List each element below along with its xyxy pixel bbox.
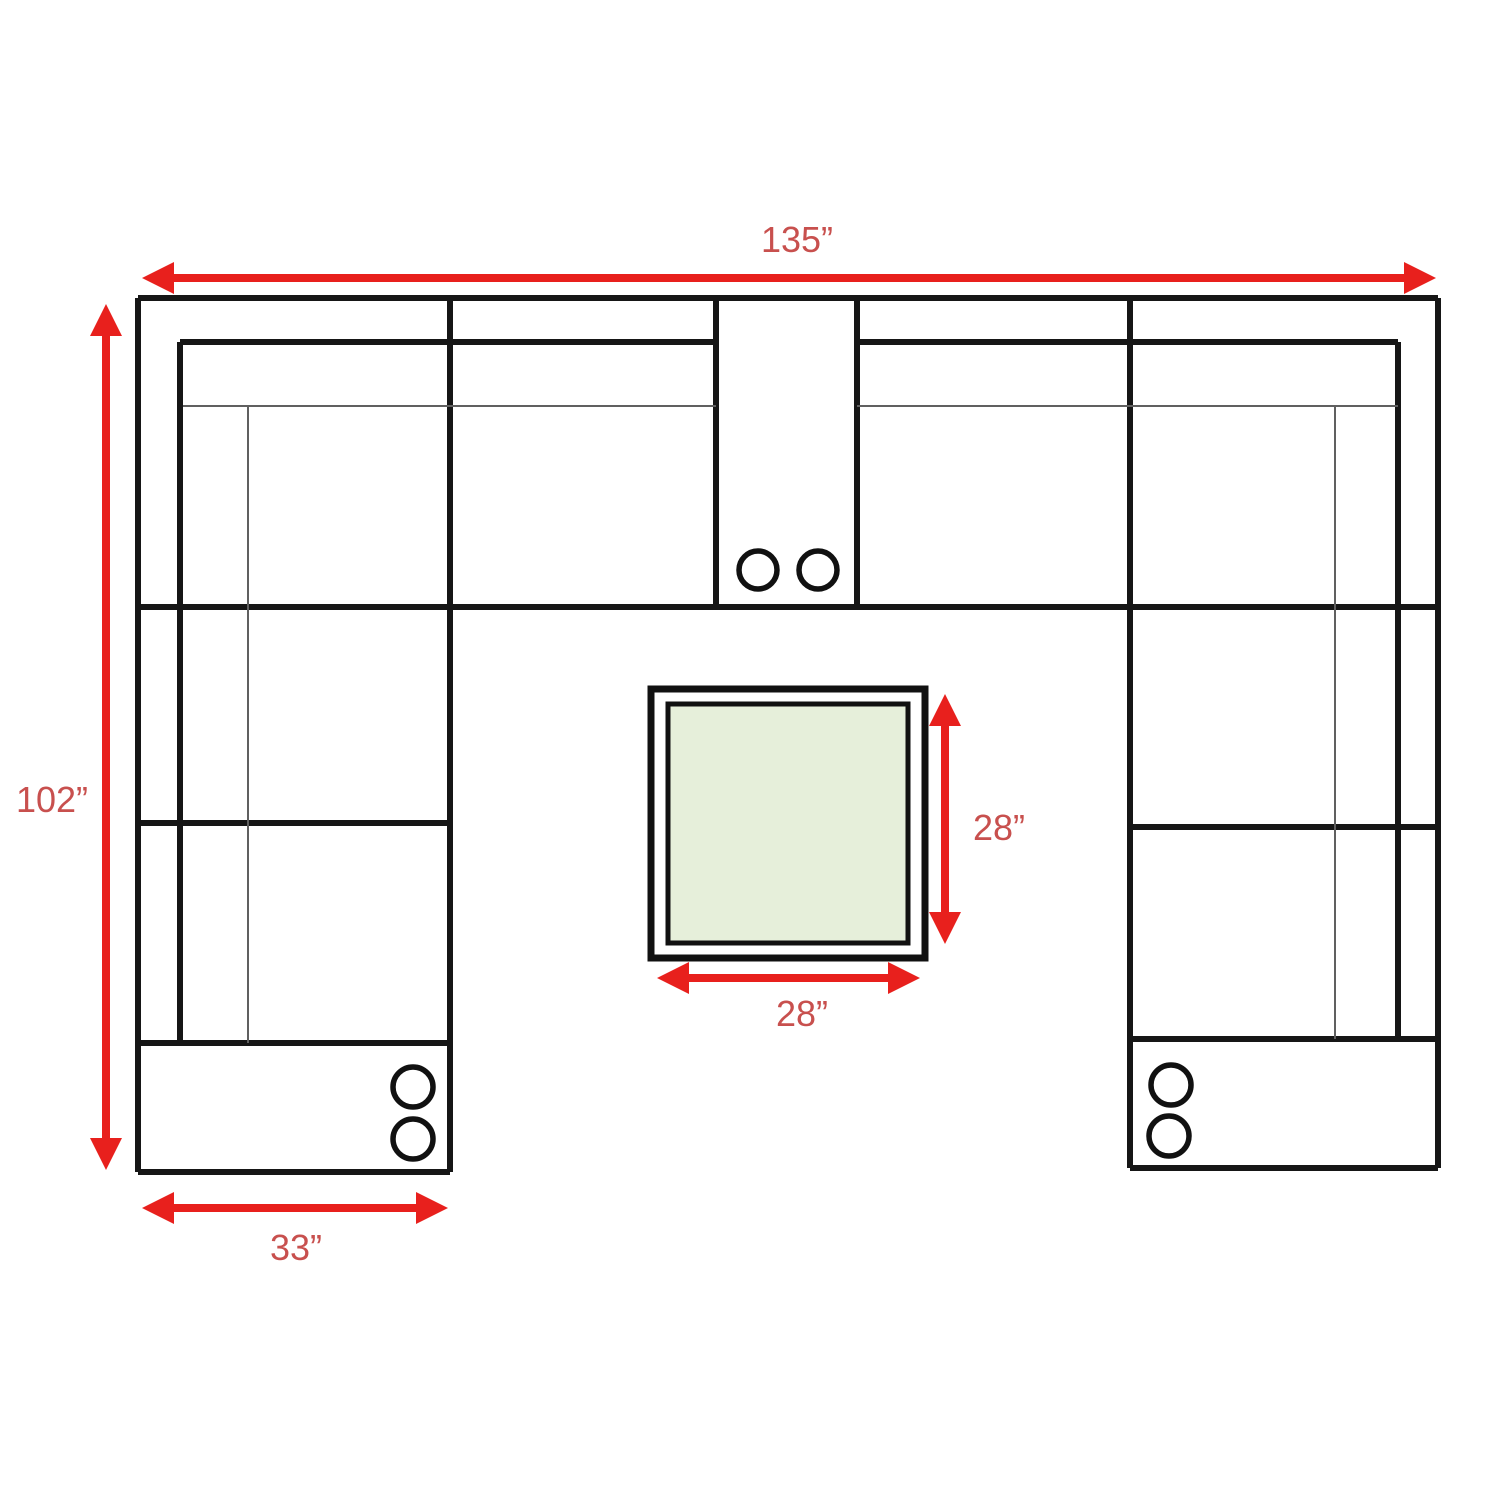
floorplan-canvas: 135” 102” 33” 28” 28” <box>0 0 1500 1500</box>
cupholder-icon <box>393 1119 433 1159</box>
cocktail-table <box>651 689 925 958</box>
table-depth-label: 28” <box>973 807 1025 848</box>
table-top-surface <box>668 704 908 943</box>
cupholder-icon <box>1151 1065 1191 1105</box>
cupholder-icon <box>799 551 837 589</box>
cupholder-icon <box>739 551 777 589</box>
table-width-label: 28” <box>776 993 828 1034</box>
overall-width-label: 135” <box>761 219 833 260</box>
overall-depth-label: 102” <box>16 779 88 820</box>
left-console-width-label: 33” <box>270 1227 322 1268</box>
sectional-diagram: 135” 102” 33” 28” 28” <box>0 0 1500 1500</box>
cupholder-icon <box>1149 1116 1189 1156</box>
cupholder-icon <box>393 1067 433 1107</box>
